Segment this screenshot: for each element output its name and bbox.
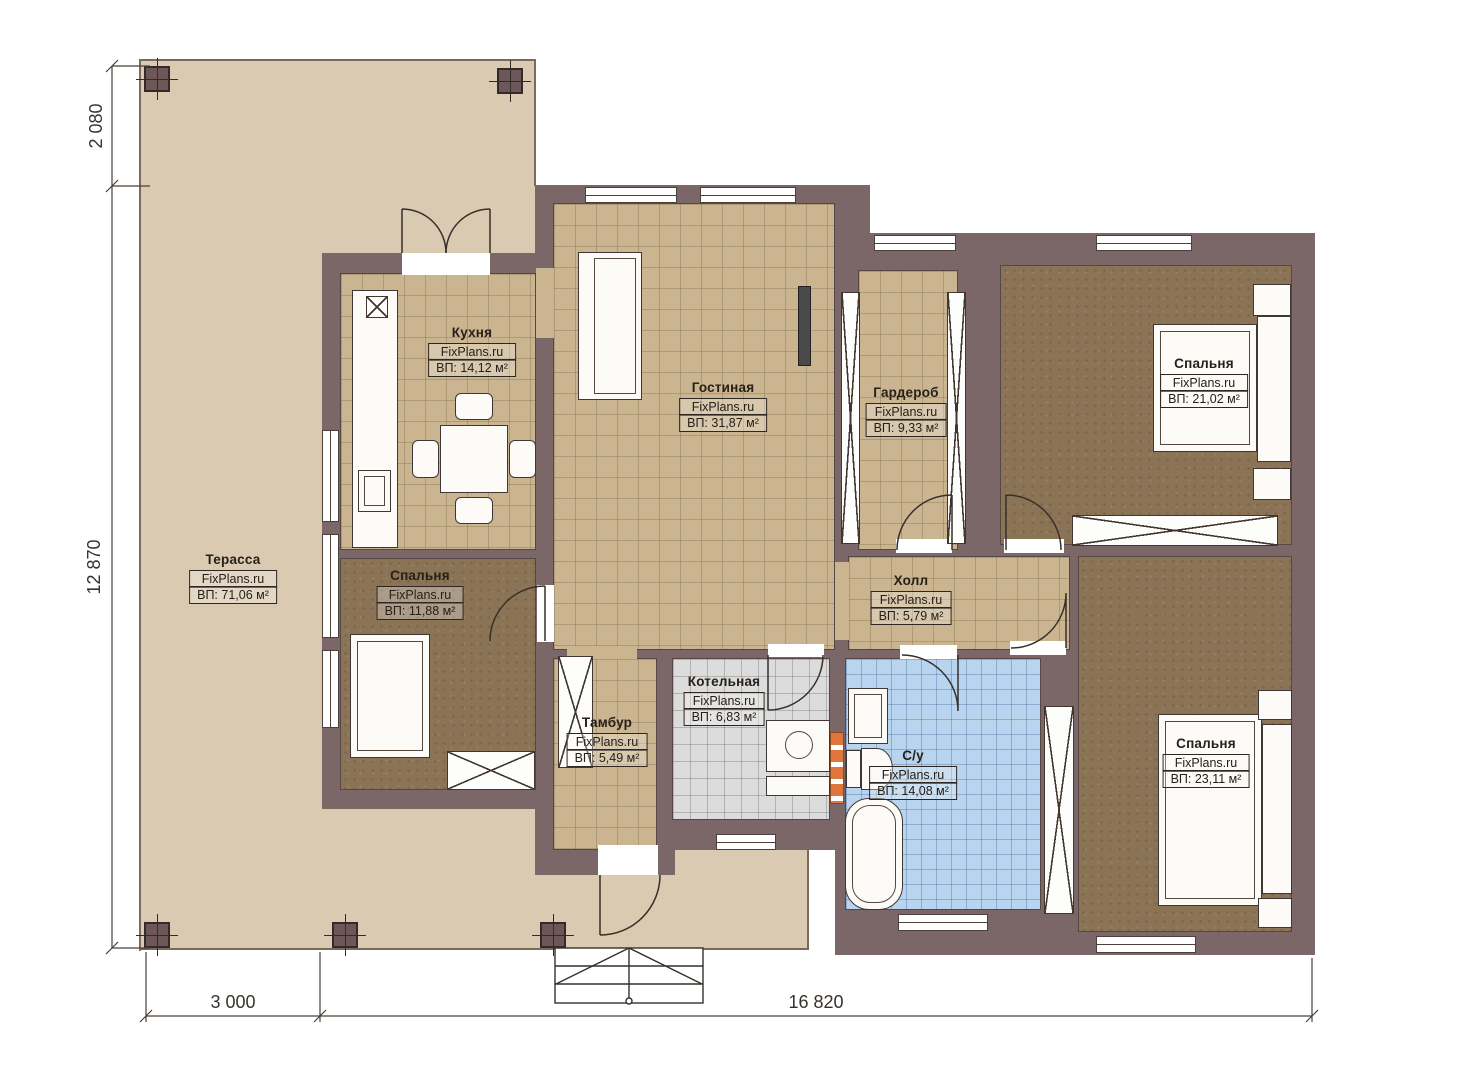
room-name: Тамбур [567, 715, 648, 730]
room-area: ВП: 11,88 м² [377, 602, 464, 620]
door-arc [1006, 495, 1061, 550]
room-area: ВП: 6,83 м² [684, 708, 765, 726]
annotation-overlay: 2 080 12 870 3 000 16 820 [0, 0, 1473, 1080]
room-label-wardrobe: Гардероб FixPlans.ru ВП: 9,33 м² [866, 385, 947, 437]
room-watermark: FixPlans.ru [871, 591, 952, 609]
room-label-boiler-room: Котельная FixPlans.ru ВП: 6,83 м² [684, 674, 765, 726]
entrance-steps [555, 948, 703, 1004]
room-watermark: FixPlans.ru [189, 570, 277, 588]
room-area: ВП: 21,02 м² [1160, 390, 1248, 408]
room-name: Гардероб [866, 385, 947, 400]
door-arc [902, 655, 958, 711]
room-label-bathroom: С/у FixPlans.ru ВП: 14,08 м² [869, 748, 957, 800]
dimension-lines [106, 60, 1318, 1022]
room-name: Спальня [1160, 356, 1248, 371]
room-watermark: FixPlans.ru [377, 586, 464, 604]
dim-bottom-house: 16 820 [788, 992, 843, 1012]
room-watermark: FixPlans.ru [679, 398, 767, 416]
room-name: Гостиная [679, 380, 767, 395]
dim-left-main: 12 870 [84, 539, 104, 594]
room-area: ВП: 31,87 м² [679, 414, 767, 432]
room-watermark: FixPlans.ru [567, 733, 648, 751]
door-arc [490, 586, 545, 641]
room-watermark: FixPlans.ru [1160, 374, 1248, 392]
door-arc [402, 209, 446, 253]
dim-left-top: 2 080 [86, 103, 106, 148]
room-label-bedroom-bottom: Спальня FixPlans.ru ВП: 23,11 м² [1163, 736, 1250, 788]
floor-plan: 2 080 12 870 3 000 16 820 Терасса FixPla… [0, 0, 1473, 1080]
room-name: Спальня [1163, 736, 1250, 751]
room-watermark: FixPlans.ru [428, 343, 516, 361]
room-name: С/у [869, 748, 957, 763]
room-watermark: FixPlans.ru [869, 766, 957, 784]
door-arc [446, 209, 490, 253]
room-name: Кухня [428, 325, 516, 340]
room-watermark: FixPlans.ru [684, 692, 765, 710]
room-area: ВП: 71,06 м² [189, 586, 277, 604]
room-watermark: FixPlans.ru [866, 403, 947, 421]
room-label-kitchen: Кухня FixPlans.ru ВП: 14,12 м² [428, 325, 516, 377]
room-label-bedroom-left: Спальня FixPlans.ru ВП: 11,88 м² [377, 568, 464, 620]
room-area: ВП: 9,33 м² [866, 419, 947, 437]
room-watermark: FixPlans.ru [1163, 754, 1250, 772]
room-label-vestibule: Тамбур FixPlans.ru ВП: 5,49 м² [567, 715, 648, 767]
room-area: ВП: 5,79 м² [871, 607, 952, 625]
room-name: Терасса [189, 552, 277, 567]
room-area: ВП: 14,12 м² [428, 359, 516, 377]
door-arc [600, 875, 660, 935]
room-label-hall: Холл FixPlans.ru ВП: 5,79 м² [871, 573, 952, 625]
room-area: ВП: 14,08 м² [869, 782, 957, 800]
room-name: Холл [871, 573, 952, 588]
room-label-living-room: Гостиная FixPlans.ru ВП: 31,87 м² [679, 380, 767, 432]
door-arc [768, 655, 823, 710]
room-name: Котельная [684, 674, 765, 689]
room-area: ВП: 23,11 м² [1163, 770, 1250, 788]
door-arc [897, 495, 952, 550]
room-area: ВП: 5,49 м² [567, 749, 648, 767]
room-label-bedroom-top: Спальня FixPlans.ru ВП: 21,02 м² [1160, 356, 1248, 408]
room-label-terrace: Терасса FixPlans.ru ВП: 71,06 м² [189, 552, 277, 604]
door-arc [1011, 593, 1066, 648]
dim-bottom-terrace: 3 000 [210, 992, 255, 1012]
room-name: Спальня [377, 568, 464, 583]
